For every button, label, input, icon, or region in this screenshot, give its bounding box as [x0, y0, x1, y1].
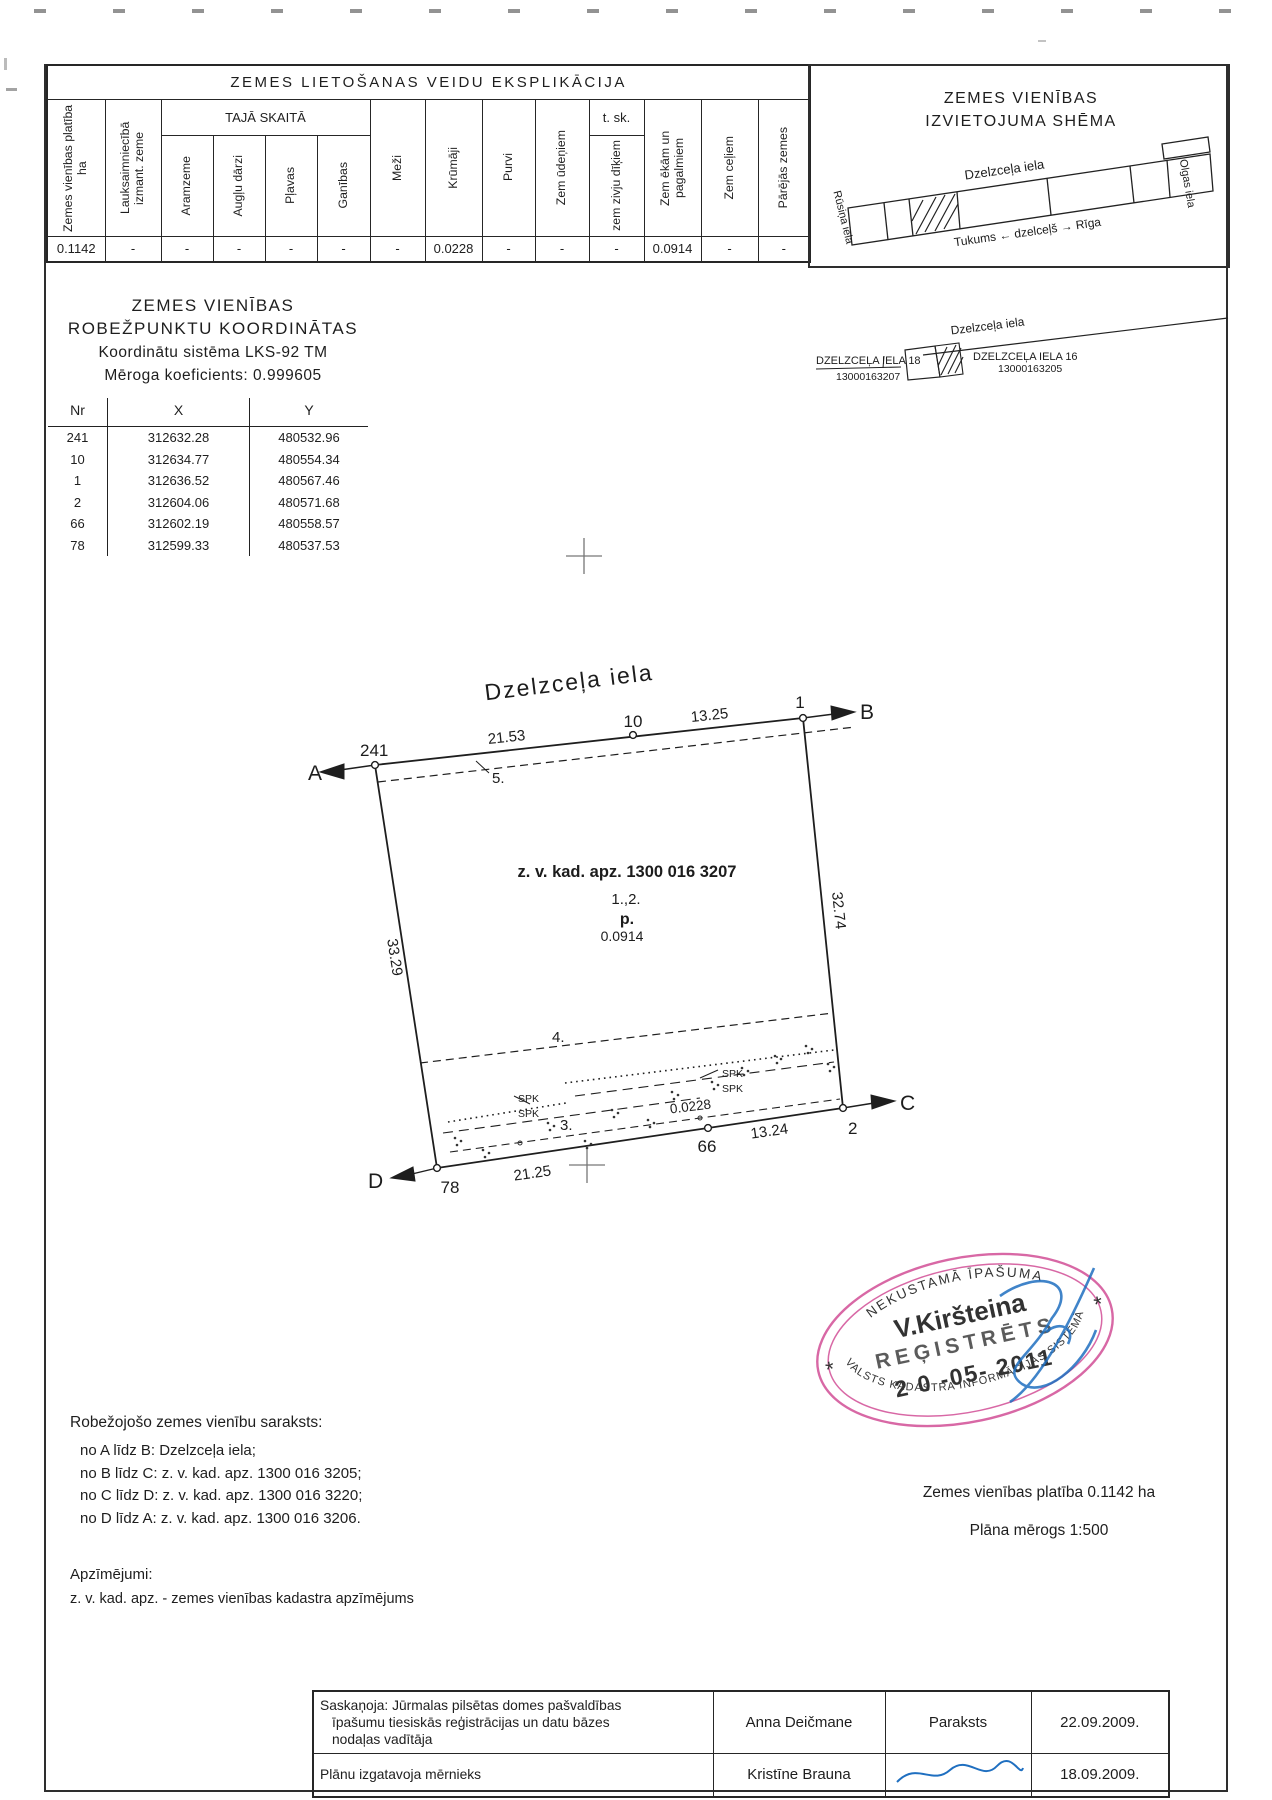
explication-title: ZEMES LIETOŠANAS VEIDU EKSPLIKĀCIJA	[47, 65, 810, 99]
explication-value: -	[758, 236, 810, 262]
col-header-platiba: Zemes vienības platība ha	[47, 99, 105, 236]
coord-cell: 1	[48, 470, 107, 492]
explication-value: -	[589, 236, 644, 262]
coord-cell: 2	[48, 492, 107, 514]
explication-value: 0.0228	[425, 236, 482, 262]
legend-title: Apzīmējumi:	[70, 1566, 153, 1583]
approval-name: Anna Deičmane	[713, 1691, 885, 1753]
scanned-land-plan-page: ZEMES LIETOŠANAS VEIDU EKSPLIKĀCIJA Zeme…	[0, 0, 1272, 1800]
border-list-item: no B līdz C: z. v. kad. apz. 1300 016 32…	[80, 1463, 362, 1486]
coords-title-1: ZEMES VIENĪBAS	[48, 296, 378, 316]
group-header-taja-skaita: TAJĀ SKAITĀ	[161, 99, 370, 135]
strip-divider	[1047, 178, 1051, 215]
scheme-street-label: Dzelzceļa iela	[964, 156, 1046, 182]
approval-date: 22.09.2009.	[1031, 1691, 1169, 1753]
col-header-parejas: Pārējās zemes	[758, 99, 810, 236]
coord-cell: 78	[48, 535, 107, 557]
scan-artifact-mark	[6, 88, 17, 91]
col-header-zem-ekam: Zem ēkām un pagalmiem	[644, 99, 701, 236]
strip-divider	[1130, 166, 1134, 203]
strip-divider	[1167, 160, 1170, 197]
border-list-title: Robežojošo zemes vienību saraksts:	[70, 1414, 322, 1432]
hatch-line	[916, 197, 936, 234]
scheme-title-2: IZVIETOJUMA SHĒMA	[810, 113, 1232, 131]
scheme-right-street-label: Olgas iela	[1177, 158, 1197, 209]
col-header-ganibas: Ganības	[317, 135, 370, 236]
col-header-zivju-dikiem: zem zivju dīķiem	[589, 135, 644, 236]
coords-header-nr: Nr	[48, 398, 107, 427]
surveyor-name: Kristīne Brauna	[713, 1753, 885, 1797]
explication-value: -	[213, 236, 265, 262]
left-parcel-code: 13000163207	[836, 371, 900, 383]
col-header-purvi: Purvi	[482, 99, 535, 236]
explication-value: 0.1142	[47, 236, 105, 262]
approval-table: Saskaņoja: Jūrmalas pilsētas domes pašva…	[312, 1690, 1170, 1798]
approval-role-line: īpašumu tiesiskās reģistrācijas un datu …	[320, 1714, 707, 1731]
surveyor-signature-cell	[885, 1753, 1031, 1797]
approval-role-cell: Saskaņoja: Jūrmalas pilsētas domes pašva…	[313, 1691, 713, 1753]
coord-cell: 312632.28	[107, 427, 250, 449]
border-list-item: no C līdz D: z. v. kad. apz. 1300 016 32…	[80, 1485, 362, 1508]
coords-header-y: Y	[250, 398, 368, 427]
explication-value: -	[265, 236, 317, 262]
coord-cell: 480571.68	[250, 492, 368, 514]
coord-cell: 10	[48, 449, 107, 471]
group-header-tsk: t. sk.	[589, 99, 644, 135]
detail-scheme: Dzelzceļa iela DZELZCEĻA IELA 18 1300016…	[808, 300, 1230, 400]
explication-value: 0.0914	[644, 236, 701, 262]
col-header-lauksaimnieciba: Lauksaimniecībā izmant. zeme	[105, 99, 161, 236]
scale-summary: Plāna mērogs 1:500	[908, 1522, 1170, 1540]
coords-scale-coef: Mēroga koeficients: 0.999605	[48, 367, 378, 385]
hatch-line	[935, 194, 955, 231]
scheme-title-1: ZEMES VIENĪBAS	[810, 90, 1232, 108]
explication-value: -	[701, 236, 758, 262]
left-parcel-label: DZELZCEĻA IELA 18	[816, 355, 921, 367]
border-list-item: no A līdz B: Dzelzceļa iela;	[80, 1440, 362, 1463]
coords-title-2: ROBEŽPUNKTU KOORDINĀTAS	[48, 319, 378, 339]
signature-stroke	[897, 1760, 1023, 1781]
coord-cell: 312602.19	[107, 513, 250, 535]
approval-signature-label: Paraksts	[885, 1691, 1031, 1753]
coord-cell: 66	[48, 513, 107, 535]
area-summary: Zemes vienības platība 0.1142 ha	[908, 1484, 1170, 1502]
col-header-aramzeme: Aramzeme	[161, 135, 213, 236]
strip-divider	[884, 203, 888, 240]
coord-cell: 480558.57	[250, 513, 368, 535]
right-parcel-label: DZELZCEĻA IELA 16	[973, 351, 1078, 363]
right-parcel-code: 13000163205	[998, 363, 1062, 375]
strip-divider	[957, 192, 960, 229]
col-header-auglu-darzi: Augļu dārzi	[213, 135, 265, 236]
coords-system: Koordinātu sistēma LKS-92 TM	[48, 344, 378, 362]
coord-cell: 312599.33	[107, 535, 250, 557]
coord-cell: 480554.34	[250, 449, 368, 471]
scheme-left-street-label: Rūsiņa iela	[831, 189, 856, 246]
coord-cell: 480537.53	[250, 535, 368, 557]
coord-cell: 312636.52	[107, 470, 250, 492]
label-underline	[816, 367, 901, 369]
surveyor-role: Plānu izgatavoja mērnieks	[313, 1753, 713, 1797]
hatch-line	[925, 195, 945, 232]
approval-role-line: nodaļas vadītāja	[320, 1731, 707, 1748]
explication-value: -	[370, 236, 425, 262]
surveyor-date: 18.09.2009.	[1031, 1753, 1169, 1797]
explication-value: -	[535, 236, 589, 262]
scan-artifact-mark	[1038, 40, 1046, 42]
coords-header-x: X	[107, 398, 250, 427]
scan-artifact-mark	[4, 58, 7, 70]
surveyor-signature	[892, 1757, 1026, 1789]
coordinates-table: Nr X Y 241 312632.28 480532.96 10 312634…	[48, 398, 368, 556]
scan-artifact-dashes	[34, 9, 1242, 13]
explication-value: -	[317, 236, 370, 262]
hatch-line	[912, 200, 923, 221]
location-scheme-box: ZEMES VIENĪBAS IZVIETOJUMA SHĒMA Dzelzce	[808, 64, 1230, 268]
explication-value: -	[105, 236, 161, 262]
hatched-parcel	[912, 194, 958, 234]
explication-value: -	[482, 236, 535, 262]
explication-value: -	[161, 236, 213, 262]
approval-role-line: Saskaņoja: Jūrmalas pilsētas domes pašva…	[320, 1697, 707, 1714]
hatched-subject-parcel	[935, 343, 963, 377]
scheme-railway-label: Tukums ← dzelceļš → Rīga	[953, 215, 1102, 250]
legend-item: z. v. kad. apz. - zemes vienības kadastr…	[70, 1591, 414, 1607]
coord-cell: 480532.96	[250, 427, 368, 449]
col-header-zem-udeniem: Zem ūdeņiem	[535, 99, 589, 236]
strip-divider	[909, 199, 913, 236]
hatch-line	[938, 347, 947, 366]
col-header-mezi: Meži	[370, 99, 425, 236]
hatch-line	[944, 204, 958, 229]
coord-cell: 312634.77	[107, 449, 250, 471]
detail-street-label: Dzelzceļa iela	[950, 315, 1026, 338]
col-header-zem-celiem: Zem ceļiem	[701, 99, 758, 236]
coord-cell: 312604.06	[107, 492, 250, 514]
coord-cell: 241	[48, 427, 107, 449]
land-use-explication-table: ZEMES LIETOŠANAS VEIDU EKSPLIKĀCIJA Zeme…	[46, 64, 811, 263]
coord-cell: 480567.46	[250, 470, 368, 492]
hatch-line	[941, 345, 956, 375]
col-header-krumaji: Krūmāji	[425, 99, 482, 236]
col-header-plavas: Pļavas	[265, 135, 317, 236]
border-list-item: no D līdz A: z. v. kad. apz. 1300 016 32…	[80, 1508, 362, 1531]
border-list: no A līdz B: Dzelzceļa iela; no B līdz C…	[80, 1440, 362, 1530]
